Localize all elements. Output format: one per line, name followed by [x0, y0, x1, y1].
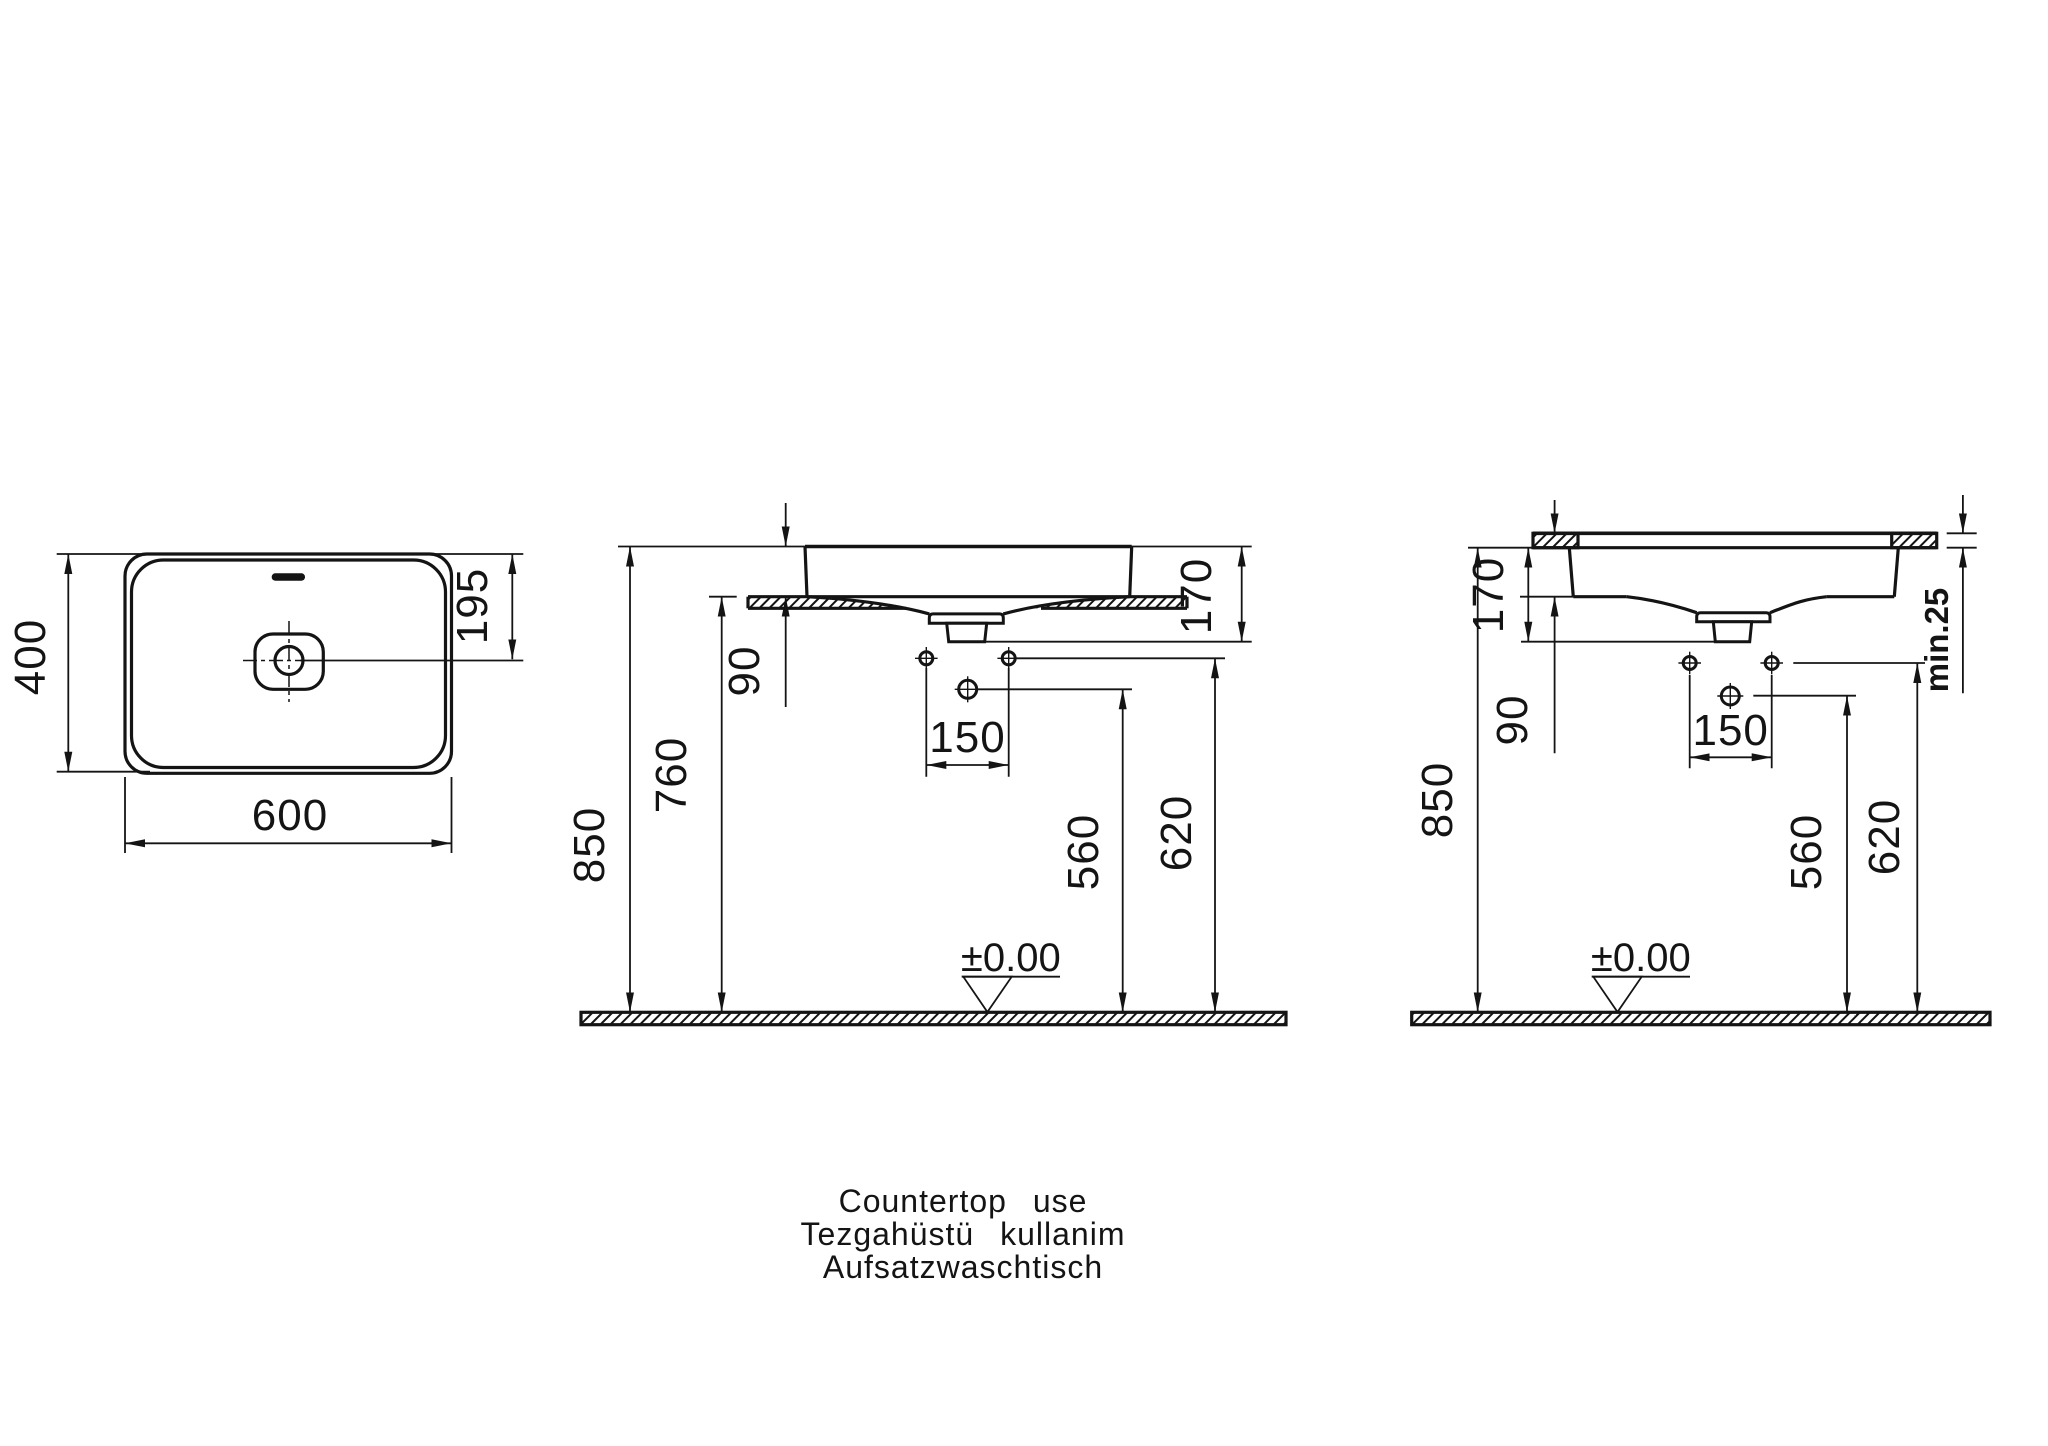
basin-left-edge: [1569, 548, 1573, 597]
datum-triangle: [963, 977, 1011, 1012]
dim-label-90: 90: [720, 646, 769, 697]
dim-label-850: 850: [565, 807, 614, 883]
top-view: 400 600 195: [6, 554, 523, 853]
floor: [1412, 1012, 1990, 1024]
drain-tailpiece: [947, 623, 987, 641]
counter-section-right: [1892, 533, 1937, 547]
dim-label-850: 850: [1413, 762, 1462, 838]
floor-datum: ±0.00: [1591, 936, 1691, 1012]
dim-label-620: 620: [1152, 795, 1201, 871]
countertop-installation-view: 850 760 90 170 150 560 620 ±0.00: [565, 503, 1286, 1025]
dim-label-150: 150: [1692, 706, 1768, 755]
caption: Countertop use Tezgahüstü kullanim Aufsa…: [801, 1183, 1126, 1285]
floor-datum: ±0.00: [961, 936, 1061, 1012]
datum-triangle: [1593, 977, 1641, 1012]
basin-right-edge: [1130, 547, 1132, 597]
dim-label-150: 150: [929, 713, 1005, 762]
datum-label: ±0.00: [1591, 936, 1691, 980]
dim-label-620: 620: [1860, 799, 1909, 875]
dim-label-drain-offset: 195: [448, 568, 497, 644]
basin-right-edge: [1894, 548, 1898, 597]
floor: [581, 1012, 1286, 1024]
fixing-holes: [1678, 652, 1783, 709]
basin-inner-edge: [132, 560, 446, 768]
dim-label-depth: 400: [6, 619, 55, 695]
basin-outer-edge: [125, 554, 452, 773]
overflow-slot: [272, 573, 305, 580]
datum-label: ±0.00: [961, 936, 1061, 980]
counter-section-left: [1533, 533, 1578, 547]
technical-drawing: 400 600 195: [0, 0, 2048, 1446]
dim-label-170: 170: [1172, 558, 1221, 634]
drain-tailpiece: [1713, 622, 1751, 642]
basin-left-edge: [805, 547, 807, 597]
bowl-underside-left: [1627, 597, 1697, 613]
caption-en: Countertop use: [839, 1183, 1088, 1219]
dim-label-560: 560: [1782, 814, 1831, 890]
fixing-holes: [915, 647, 1020, 702]
caption-de: Aufsatzwaschtisch: [823, 1249, 1103, 1285]
dim-label-min25: min.25: [1918, 588, 1955, 693]
dim-label-170: 170: [1464, 557, 1513, 633]
recessed-installation-view: 850 170 90 min.25 150 560 620 ±0.00: [1412, 495, 1990, 1025]
dim-label-760: 760: [647, 737, 696, 813]
bowl-underside-right: [1770, 597, 1827, 613]
dim-label-width: 600: [252, 791, 328, 840]
dim-label-560: 560: [1059, 814, 1108, 890]
drawing-sheet: 400 600 195: [0, 0, 2048, 1446]
caption-tr: Tezgahüstü kullanim: [801, 1216, 1126, 1252]
dim-label-90: 90: [1488, 695, 1537, 746]
